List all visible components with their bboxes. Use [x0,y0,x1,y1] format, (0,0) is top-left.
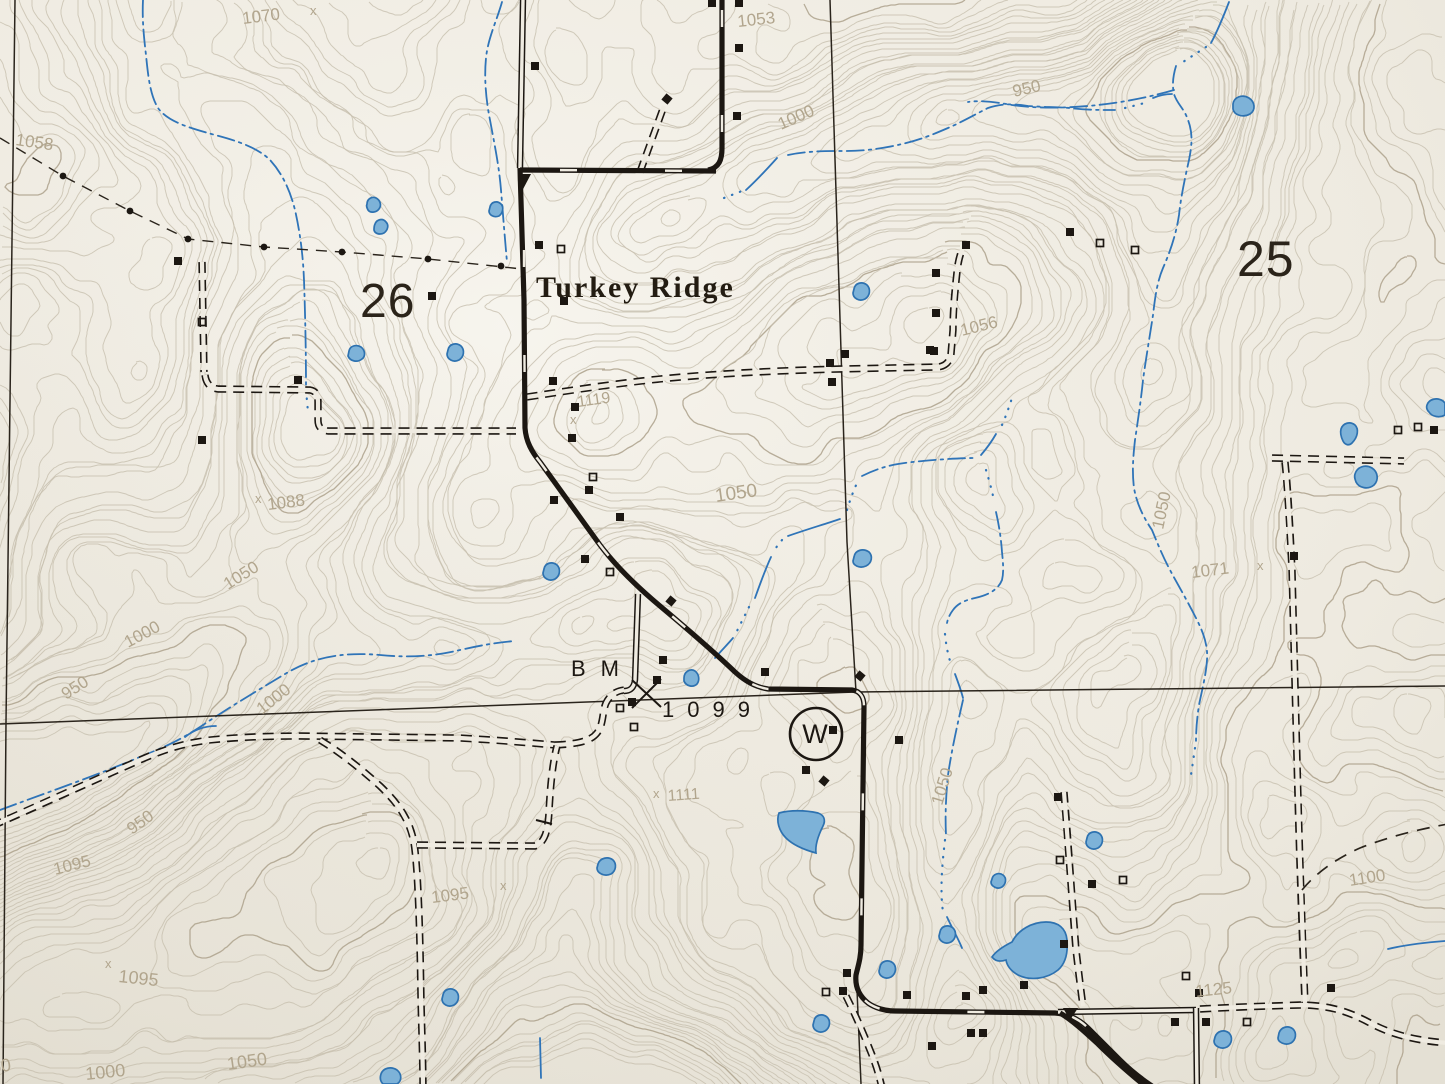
svg-text:x: x [105,956,112,971]
svg-text:Turkey Ridge: Turkey Ridge [536,271,735,304]
svg-text:1000: 1000 [84,1060,126,1084]
svg-text:W: W [802,719,828,749]
svg-text:25: 25 [1237,231,1295,287]
svg-text:x: x [570,412,577,427]
svg-text:x: x [255,491,262,506]
svg-text:1125: 1125 [1194,978,1232,1001]
svg-text:x: x [500,878,507,893]
svg-text:1111: 1111 [667,786,700,805]
svg-text:1099: 1099 [662,697,763,722]
svg-text:x: x [310,3,317,18]
svg-text:x: x [1257,558,1264,573]
svg-text:1053: 1053 [736,8,776,31]
svg-text:BM: BM [571,656,634,681]
svg-text:26: 26 [360,275,415,328]
svg-text:x: x [653,786,660,801]
svg-text:1095: 1095 [118,966,160,990]
